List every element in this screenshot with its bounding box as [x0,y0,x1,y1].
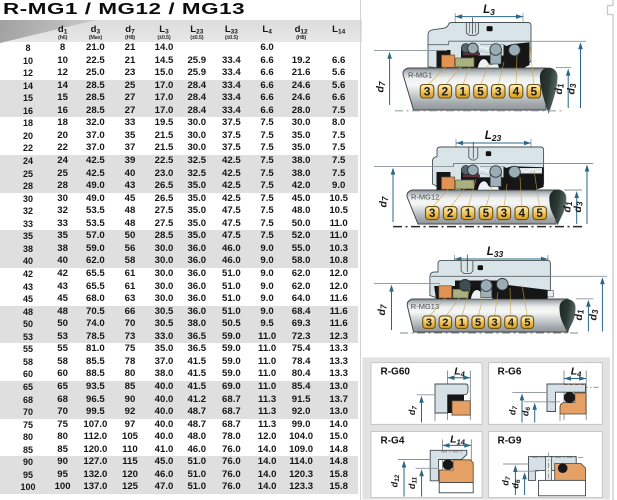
svg-text:2: 2 [442,84,449,98]
svg-text:d3: d3 [587,309,600,320]
svg-text:d7: d7 [376,304,389,315]
svg-text:3: 3 [495,84,502,98]
svg-text:L33: L33 [487,246,504,259]
svg-text:1: 1 [459,84,466,98]
svg-text:5: 5 [524,317,530,329]
svg-text:5: 5 [531,84,538,98]
svg-text:4: 4 [508,317,515,329]
svg-text:4: 4 [519,208,526,220]
svg-text:R-MG1: R-MG1 [408,71,432,80]
svg-text:2: 2 [442,317,448,329]
svg-text:2: 2 [447,208,453,220]
svg-text:d3: d3 [566,83,579,94]
svg-text:5: 5 [536,208,543,220]
svg-text:R-G6: R-G6 [498,367,522,378]
svg-text:R-G9: R-G9 [498,436,522,447]
svg-text:d7: d7 [378,196,391,207]
svg-text:3: 3 [491,317,497,329]
svg-text:L23: L23 [485,130,502,143]
svg-text:5: 5 [483,208,490,220]
svg-text:3: 3 [501,208,507,220]
svg-text:3: 3 [426,317,432,329]
svg-text:5: 5 [475,317,481,329]
svg-text:d7: d7 [375,81,388,92]
svg-text:R-MG12: R-MG12 [411,193,439,202]
svg-text:R-G60: R-G60 [381,367,411,378]
svg-text:4: 4 [513,84,520,98]
svg-text:5: 5 [477,84,484,98]
svg-text:1: 1 [465,208,472,220]
svg-text:3: 3 [429,208,435,220]
svg-text:3: 3 [424,84,431,98]
svg-text:R-G4: R-G4 [381,436,405,447]
svg-text:1: 1 [459,317,465,329]
svg-text:L3: L3 [483,4,495,17]
